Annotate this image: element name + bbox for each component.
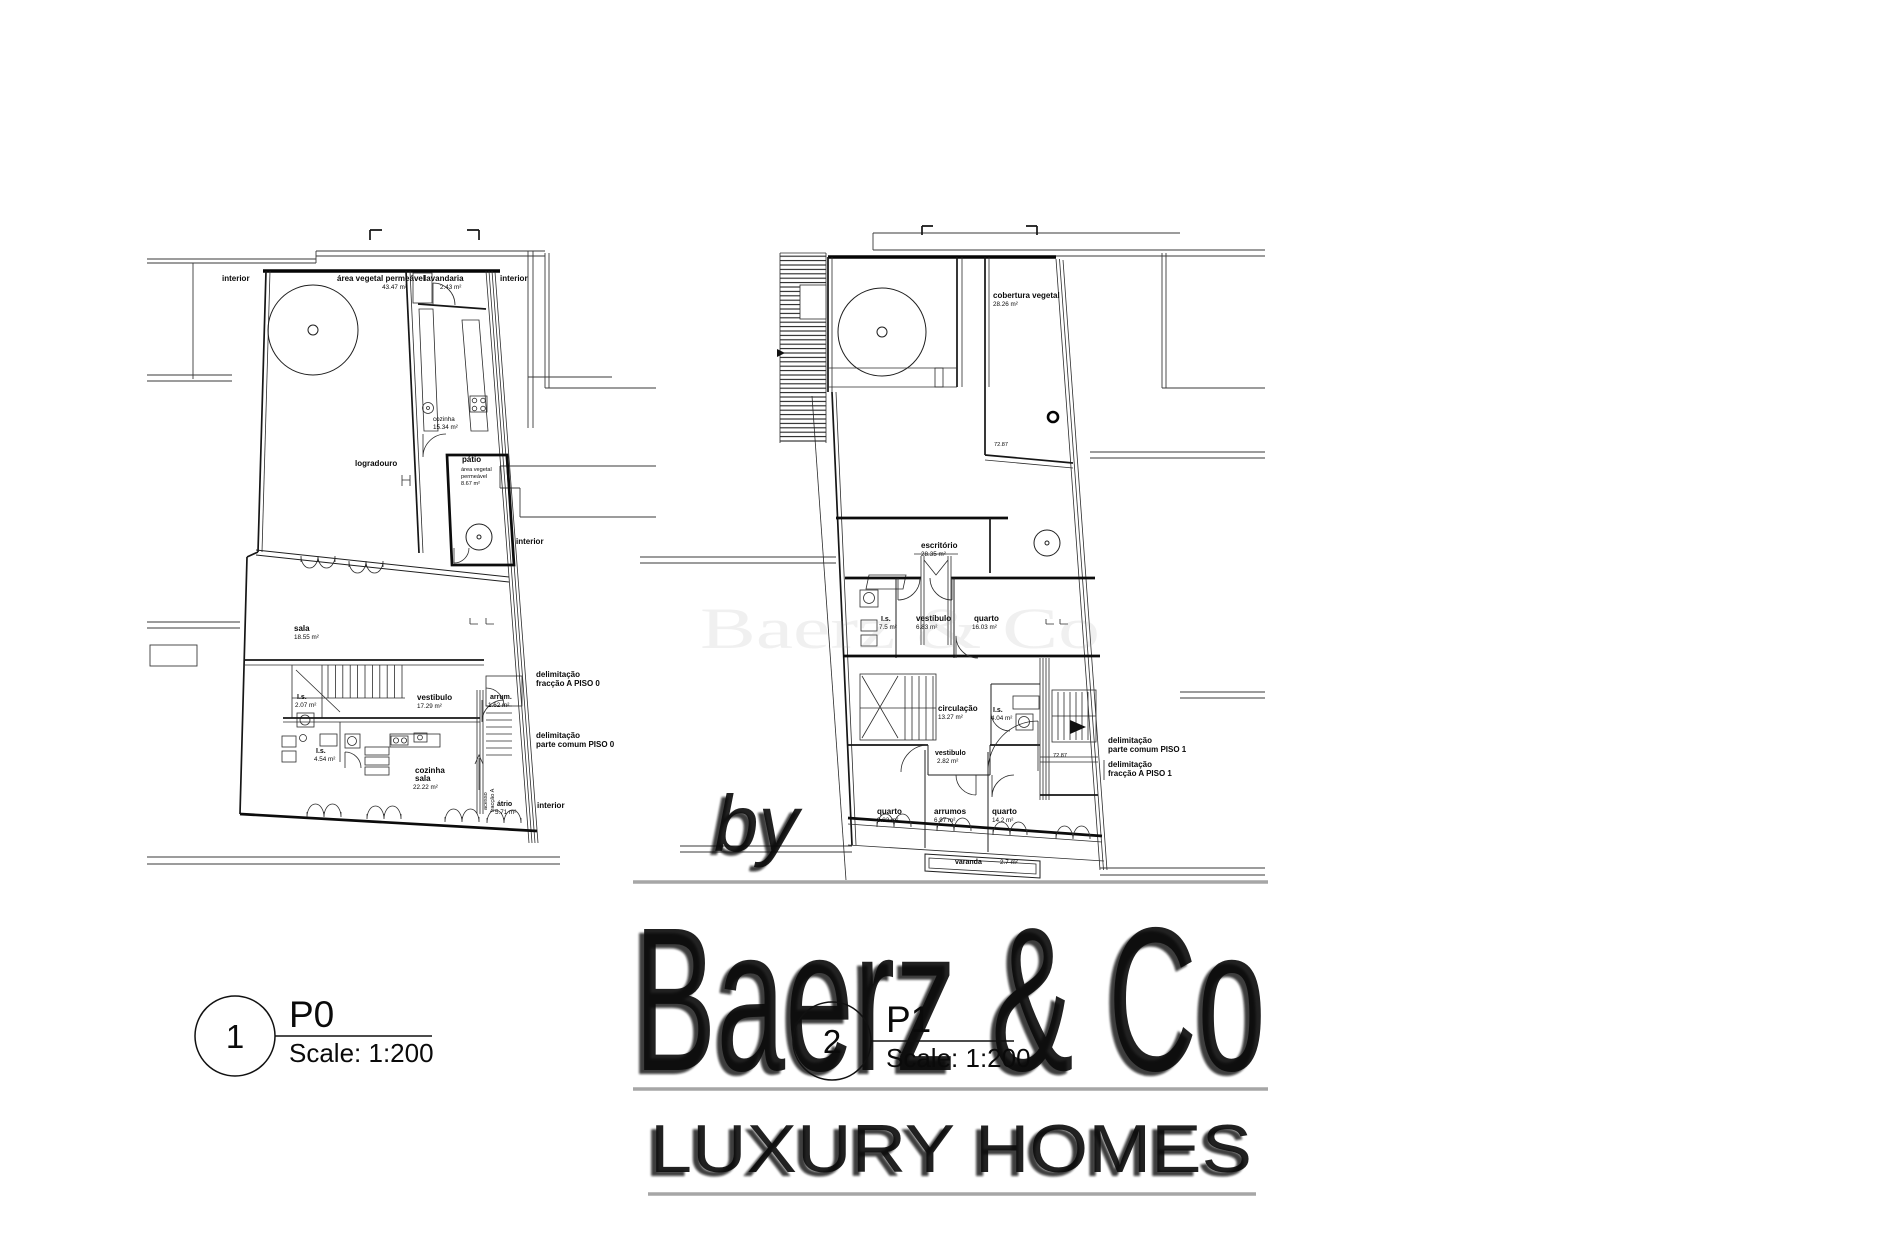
room-label-lavandaria: lavandaria <box>424 274 464 283</box>
wc-icon <box>1016 714 1033 730</box>
stairs-icon <box>1052 690 1096 742</box>
room-sub-patio: área vegetal <box>461 467 492 473</box>
room-area-cozinha: 15.34 m² <box>433 424 458 431</box>
marker-code: P0 <box>289 994 334 1035</box>
room-area-circulacao: 13.27 m² <box>938 714 963 721</box>
room-label-varanda: varanda <box>955 859 982 866</box>
room-area-vestibulo: 17.29 m² <box>417 703 442 710</box>
room-label-arrum: arrum. <box>490 694 512 701</box>
room-label-arrumos: arrumos <box>934 807 967 816</box>
stairs-icon <box>292 665 405 718</box>
room-area-cozinha-sala: 22.22 m² <box>413 784 438 791</box>
balcony-outline <box>925 854 1040 878</box>
room-label-cozinha-sala: sala <box>415 774 431 783</box>
stove-icon <box>470 396 487 412</box>
door-arc-icon <box>988 721 1038 771</box>
delim-label: fracção A PISO 1 <box>1108 769 1172 778</box>
room-area-arrumos: 6.97 m² <box>934 817 955 824</box>
context-label-interior: interior <box>222 274 250 283</box>
stairs-icon <box>860 674 936 740</box>
room-area-arrum: 1.62 m² <box>488 702 509 709</box>
sink-icon <box>423 403 434 414</box>
room-label-is: I.s. <box>316 748 326 755</box>
stairs-icon <box>486 706 512 755</box>
room-label-area-vegetal: área vegetal permeável <box>337 274 425 283</box>
delim-label: delimitação <box>1108 760 1152 769</box>
room-area-patio: 8.67 m² <box>461 481 480 487</box>
label-acesso-fraccao: fracção A <box>490 788 496 812</box>
room-label-logradouro: logradouro <box>355 459 397 468</box>
stair-arrow-icon <box>475 755 483 790</box>
door-arc-icon <box>901 745 928 772</box>
room-label-quarto: quarto <box>877 807 902 816</box>
room-area-lavandaria: 2.43 m² <box>440 284 461 291</box>
section-h-icon <box>402 475 410 486</box>
door-arc-icon <box>345 752 361 768</box>
delim-label: fracção A PISO 0 <box>536 679 600 688</box>
room-label-vestibulo: vestibulo <box>417 693 452 702</box>
room-label-atrio: átrio <box>497 801 512 808</box>
room-area-is: 4.04 m² <box>991 715 1012 722</box>
drain-icon <box>1048 412 1058 422</box>
marker-code: P1 <box>886 999 931 1040</box>
room-area-quarto: 14.2 m² <box>992 817 1013 824</box>
delim-label: delimitação <box>1108 736 1152 745</box>
room-sub-patio: permeável <box>461 474 487 480</box>
elevation-value: 72.87 <box>994 442 1008 448</box>
marker-scale: Scale: 1:200 <box>886 1043 1031 1073</box>
door-arc-icon <box>454 548 469 563</box>
room-area-is: 2.07 m² <box>295 702 316 709</box>
room-label-patio: pátio <box>462 455 481 464</box>
tree-icon <box>268 285 358 375</box>
room-area-escritorio: 28.35 m² <box>921 551 946 558</box>
door-arc-icon <box>956 775 976 795</box>
room-area-vestibulo2: 2.82 m² <box>937 758 958 765</box>
wc-icon <box>297 713 314 727</box>
room-area-varanda: 2.7 m² <box>1000 859 1018 866</box>
room-label-quarto: quarto <box>992 807 1017 816</box>
room-label-circulacao: circulação <box>938 704 978 713</box>
section-mark-icon <box>922 226 1037 235</box>
room-area-cobertura: 28.26 m² <box>993 301 1018 308</box>
room-label-escritorio: escritório <box>921 541 958 550</box>
delim-label: delimitação <box>536 670 580 679</box>
watermark-by: by <box>714 779 803 868</box>
hob-icon <box>391 736 408 745</box>
room-label-sala: sala <box>294 624 310 633</box>
watermark-brand: Baerz & Co <box>634 885 1266 1114</box>
room-label-is: I.s. <box>993 707 1003 714</box>
plan-p0-linework <box>147 230 656 864</box>
elevation-value: 72.87 <box>1053 753 1067 759</box>
label-acesso: acesso <box>483 792 489 810</box>
floorplan-sheet: interior área vegetal permeável 43.47 m²… <box>0 0 1888 1250</box>
context-label-interior: interior <box>537 801 565 810</box>
room-area-is: 4.54 m² <box>314 756 335 763</box>
delim-label: delimitação <box>536 731 580 740</box>
room-label-cozinha: cozinha <box>433 416 455 423</box>
section-mark-icon <box>370 230 479 240</box>
door-arc-icon <box>992 775 1014 797</box>
watermark-tagline: LUXURY HOMES <box>650 1111 1252 1187</box>
door-arc-icon <box>423 434 446 457</box>
room-label-cobertura: cobertura vegetal <box>993 291 1060 300</box>
marker-scale: Scale: 1:200 <box>289 1038 434 1068</box>
marker-number: 2 <box>823 1023 841 1060</box>
marker-p0: 1 P0 Scale: 1:200 <box>195 994 434 1076</box>
room-area-atrio: 5.71 m² <box>495 809 516 816</box>
room-area-quarto: 9.83 m² <box>877 817 898 824</box>
room-label-vestibulo2: vestibulo <box>935 750 966 757</box>
context-label-interior: interior <box>500 274 528 283</box>
watermark-faint-text: Baerz & Co <box>700 596 1100 661</box>
room-label-is: I.s. <box>297 694 307 701</box>
tree-icon <box>838 288 926 376</box>
delim-label: parte comum PISO 1 <box>1108 745 1187 754</box>
roof-hatch <box>777 253 826 443</box>
room-area-area-vegetal: 43.47 m² <box>382 284 407 291</box>
delim-label: parte comum PISO 0 <box>536 740 615 749</box>
floorplan-drawing: interior área vegetal permeável 43.47 m²… <box>0 0 1888 1250</box>
watermark: Baerz & Co by Baerz & Co LUXURY HOMES by… <box>629 596 1268 1194</box>
room-area-sala: 18.55 m² <box>294 634 319 641</box>
marker-number: 1 <box>226 1018 244 1055</box>
context-label-interior: interior <box>516 537 544 546</box>
